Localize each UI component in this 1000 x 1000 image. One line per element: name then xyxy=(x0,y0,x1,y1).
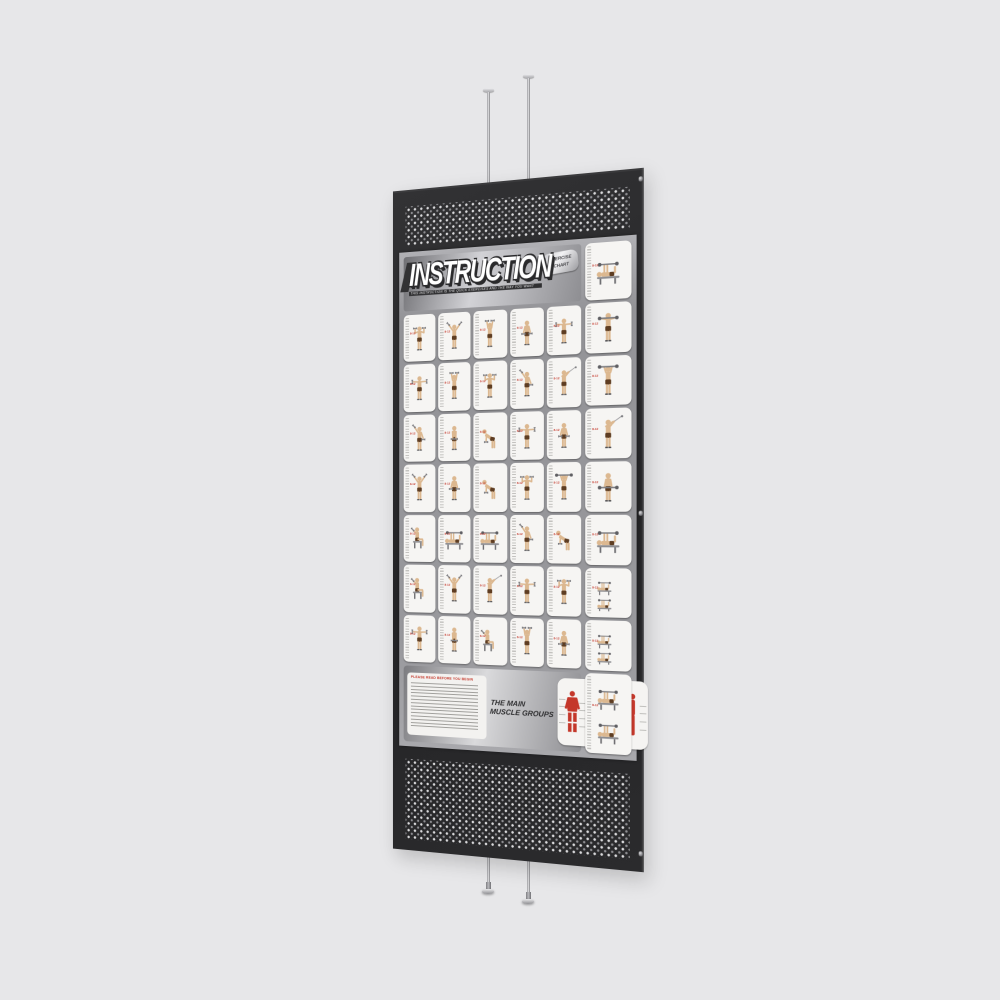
exercise-figure-icon xyxy=(407,572,431,605)
reps-label: 8-12 xyxy=(445,482,451,485)
reps-label: 8-12 xyxy=(553,585,559,588)
exercise-figure-icon xyxy=(407,372,431,405)
title-block: INSTRUCTION THIS INSTRUCTION IS THE QUIC… xyxy=(409,251,540,300)
exercise-cell: 8-12 xyxy=(438,565,471,613)
reps-label: 8-12 xyxy=(553,429,559,432)
exercise-cell: 8-12 xyxy=(547,462,582,511)
rod-shaft xyxy=(487,92,490,190)
instruction-poster: INSTRUCTION THIS INSTRUCTION IS THE QUIC… xyxy=(399,235,636,761)
exercise-figure-icon xyxy=(407,522,431,554)
exercise-cell: 8-12 xyxy=(585,240,631,301)
reps-label: 8-12 xyxy=(410,483,415,486)
exercise-cell: 8-12 xyxy=(404,314,436,363)
exercise-figure-icon xyxy=(442,623,467,656)
exercise-cell: 8-12 xyxy=(438,362,471,411)
exercise-name-label xyxy=(405,368,409,409)
exercise-name-label xyxy=(405,518,409,559)
notice-block: PLEASE READ BEFORE YOU BEGIN xyxy=(407,672,486,739)
exercise-name-label xyxy=(587,571,591,615)
rod-foot xyxy=(482,889,494,894)
notice-fine-print xyxy=(411,682,478,731)
exercise-figure-icon xyxy=(478,573,503,606)
exercise-cell: 8-12 xyxy=(547,357,582,407)
exercise-cell: 8-12 xyxy=(404,364,436,412)
reps-label: 8-12 xyxy=(445,634,451,637)
exercise-figure-icon xyxy=(591,627,625,665)
exercise-figure-icon xyxy=(442,319,467,353)
exercise-name-label xyxy=(440,568,444,610)
product-photo-backdrop: INSTRUCTION THIS INSTRUCTION IS THE QUIC… xyxy=(0,0,1000,1000)
reps-label: 8-12 xyxy=(592,322,598,325)
exercise-cell: 8-12 xyxy=(547,305,582,356)
exercise-cell: 8-12 xyxy=(474,412,507,461)
exercise-name-label xyxy=(440,618,444,660)
reps-label: 8-12 xyxy=(516,636,522,639)
exercise-figure-icon xyxy=(551,574,578,608)
exercise-cell: 8-12 xyxy=(474,463,507,511)
exercise-name-label xyxy=(405,568,409,609)
exercise-cell: 8-12 xyxy=(404,615,436,663)
reps-label: 8-12 xyxy=(516,378,522,381)
exercise-figure-icon xyxy=(591,679,625,749)
poster-header: INSTRUCTION THIS INSTRUCTION IS THE QUIC… xyxy=(404,244,582,312)
reps-label: 8-12 xyxy=(592,704,598,707)
exercise-name-label xyxy=(440,366,444,408)
exercise-figure-icon xyxy=(442,522,467,555)
exercise-figure-icon xyxy=(407,422,431,455)
exercise-cell: 8-12 xyxy=(547,515,582,564)
exercise-name-label xyxy=(476,416,480,458)
instruction-panel: INSTRUCTION THIS INSTRUCTION IS THE QUIC… xyxy=(393,168,644,873)
exercise-figure-icon xyxy=(551,470,578,504)
exercise-figure-icon xyxy=(514,522,540,555)
exercise-figure-icon xyxy=(551,626,578,660)
rod-shaft xyxy=(527,78,530,186)
exercise-figure-icon xyxy=(442,421,467,454)
exercise-name-label xyxy=(405,418,409,459)
exercise-figure-icon xyxy=(551,522,578,556)
exercise-cell: 8-12 xyxy=(474,515,507,563)
exercise-name-label xyxy=(549,466,553,509)
exercise-name-label xyxy=(549,570,553,613)
reps-label: 8-12 xyxy=(592,534,598,537)
exercise-figure-icon xyxy=(407,321,431,354)
exercise-figure-icon xyxy=(591,521,625,558)
muscle-groups-title: THE MAIN MUSCLE GROUPS xyxy=(490,699,555,720)
exercise-figure-icon xyxy=(478,420,503,453)
exercise-cell: 8-12 xyxy=(585,301,631,353)
exercise-cell: 8-12 xyxy=(404,414,436,462)
top-rod-right xyxy=(523,74,534,186)
exercise-name-label xyxy=(587,465,591,509)
exercise-cell: 8-12 xyxy=(510,463,544,512)
exercise-name-label xyxy=(440,467,444,509)
exercise-figure-icon xyxy=(407,622,431,655)
exercise-name-label xyxy=(405,318,409,359)
poster-main-column: INSTRUCTION THIS INSTRUCTION IS THE QUIC… xyxy=(404,244,582,752)
exercise-name-label xyxy=(512,620,516,663)
exercise-name-label xyxy=(512,363,516,406)
exercise-figure-icon xyxy=(478,317,503,351)
exercise-cell: 8-12 xyxy=(510,411,544,460)
exercise-figure-icon xyxy=(514,625,540,659)
screw-bottom-right xyxy=(638,851,643,856)
exercise-figure-icon xyxy=(407,472,431,504)
exercise-name-label xyxy=(476,569,480,611)
exercise-name-label xyxy=(476,365,480,407)
exercise-name-label xyxy=(587,412,591,456)
reps-label: 8-12 xyxy=(410,433,415,436)
exercise-cell: 8-12 xyxy=(585,515,631,565)
exercise-cell: 8-12 xyxy=(547,410,582,460)
reps-label: 8-12 xyxy=(410,533,415,536)
muscle-groups-bar: PLEASE READ BEFORE YOU BEGIN THE MAIN MU… xyxy=(404,665,582,752)
exercise-name-label xyxy=(587,359,591,403)
exercise-cell: 8-12 xyxy=(547,618,582,668)
exercise-grid: 8-128-128-128-128-128-128-128-128-128-12… xyxy=(404,305,582,669)
reps-label: 8-12 xyxy=(445,583,451,586)
reps-label: 8-12 xyxy=(516,533,522,536)
screw-middle-right xyxy=(638,511,643,516)
exercise-figure-icon xyxy=(514,367,540,401)
exercise-figure-icon xyxy=(551,313,578,348)
reps-label: 8-12 xyxy=(410,633,415,636)
screw-top-right xyxy=(638,176,643,181)
exercise-figure-icon xyxy=(478,624,503,658)
exercise-name-label xyxy=(587,246,591,297)
exercise-cell: 8-12 xyxy=(404,565,436,613)
exercise-cell: 8-12 xyxy=(438,312,471,361)
exercise-name-label xyxy=(512,466,516,508)
exercise-cell: 8-12 xyxy=(404,465,436,512)
exercise-cell: 8-12 xyxy=(510,307,544,357)
reps-label: 8-12 xyxy=(592,587,598,590)
exercise-figure-icon xyxy=(442,472,467,505)
rod-nut xyxy=(486,882,491,889)
top-rod-left xyxy=(483,88,494,190)
badge-line-2: CHART xyxy=(553,262,569,269)
exercise-figure-icon xyxy=(514,471,540,504)
exercise-figure-icon xyxy=(591,308,625,347)
reps-label: 8-12 xyxy=(553,377,559,380)
rod-nut xyxy=(526,892,531,899)
exercise-name-label xyxy=(587,676,591,750)
reps-label: 8-12 xyxy=(480,635,486,638)
reps-label: 8-12 xyxy=(553,637,559,640)
exercise-name-label xyxy=(405,468,409,509)
reps-label: 8-12 xyxy=(553,533,559,536)
reps-label: 8-12 xyxy=(516,585,522,588)
muscle-figure-front-icon xyxy=(558,683,588,741)
exercise-figure-icon xyxy=(591,574,625,612)
exercise-figure-icon xyxy=(514,315,540,349)
reps-label: 8-12 xyxy=(480,584,486,587)
reps-label: 8-12 xyxy=(445,533,451,536)
reps-label: 8-12 xyxy=(480,380,486,383)
bottom-vent-grille xyxy=(405,759,629,860)
exercise-cell: 8-12 xyxy=(404,515,436,562)
exercise-cell: 8-12 xyxy=(474,361,507,410)
exercise-name-label xyxy=(512,518,516,560)
exercise-cell: 8-12 xyxy=(510,617,544,667)
exercise-name-label xyxy=(587,518,591,562)
exercise-name-label xyxy=(512,415,516,458)
reps-label: 8-12 xyxy=(480,482,486,485)
exercise-cell: 8-12 xyxy=(438,616,471,665)
exercise-cell: 8-12 xyxy=(585,673,631,755)
exercise-figure-icon xyxy=(591,415,625,453)
exercise-name-label xyxy=(512,569,516,611)
exercise-cell: 8-12 xyxy=(585,461,631,511)
exercise-cell: 8-12 xyxy=(585,620,631,672)
exercise-name-label xyxy=(476,619,480,661)
exercise-cell: 8-12 xyxy=(585,408,631,459)
exercise-figure-icon xyxy=(478,369,503,403)
exercise-name-label xyxy=(587,307,591,351)
reps-label: 8-12 xyxy=(516,482,522,485)
exercise-cell: 8-12 xyxy=(510,566,544,615)
reps-label: 8-12 xyxy=(592,481,598,484)
side-exercise-column: 8-128-128-128-128-128-128-128-128-12 xyxy=(585,240,631,755)
exercise-figure-icon xyxy=(514,574,540,608)
exercise-cell: 8-12 xyxy=(474,616,507,665)
exercise-name-label xyxy=(549,362,553,405)
notice-title: PLEASE READ BEFORE YOU BEGIN xyxy=(411,675,454,680)
reps-label: 8-12 xyxy=(445,432,451,435)
reps-label: 8-12 xyxy=(410,583,415,586)
exercise-name-label xyxy=(440,316,444,358)
exercise-figure-icon xyxy=(591,468,625,505)
exercise-cell: 8-12 xyxy=(510,515,544,564)
exercise-name-label xyxy=(476,467,480,509)
exercise-figure-icon xyxy=(551,365,578,399)
exercise-figure-icon xyxy=(442,573,467,606)
exercise-figure-icon xyxy=(551,418,578,452)
exercise-name-label xyxy=(440,518,444,560)
exercise-figure-icon xyxy=(591,361,625,399)
reps-label: 8-12 xyxy=(480,533,486,536)
exercise-name-label xyxy=(476,518,480,560)
exercise-figure-icon xyxy=(514,419,540,453)
exercise-cell: 8-12 xyxy=(438,464,471,512)
reps-label: 8-12 xyxy=(592,428,598,431)
reps-label: 8-12 xyxy=(410,383,415,386)
exercise-name-label xyxy=(549,622,553,665)
exercise-name-label xyxy=(587,623,591,667)
exercise-cell: 8-12 xyxy=(438,413,471,461)
reps-label: 8-12 xyxy=(592,375,598,378)
exercise-cell: 8-12 xyxy=(585,568,631,619)
exercise-cell: 8-12 xyxy=(474,566,507,615)
exercise-cell: 8-12 xyxy=(510,359,544,409)
rod-foot xyxy=(522,899,534,904)
exercise-cell: 8-12 xyxy=(585,354,631,406)
exercise-figure-icon xyxy=(478,522,503,555)
exercise-figure-icon xyxy=(478,471,503,504)
exercise-name-label xyxy=(512,312,516,355)
exercise-name-label xyxy=(476,314,480,356)
reps-label: 8-12 xyxy=(553,481,559,484)
exercise-figure-icon xyxy=(591,251,625,290)
exercise-name-label xyxy=(549,310,553,353)
exercise-name-label xyxy=(440,417,444,459)
exercise-name-label xyxy=(549,518,553,561)
exercise-name-label xyxy=(549,414,553,457)
exercise-name-label xyxy=(405,618,409,659)
reps-label: 8-12 xyxy=(592,639,598,642)
reps-label: 8-12 xyxy=(445,381,451,384)
reps-label: 8-12 xyxy=(480,431,486,434)
exercise-cell: 8-12 xyxy=(547,567,582,617)
exercise-cell: 8-12 xyxy=(474,309,507,359)
exercise-cell: 8-12 xyxy=(438,515,471,563)
reps-label: 8-12 xyxy=(516,430,522,433)
exercise-figure-icon xyxy=(442,370,467,403)
muscle-title-line-2: MUSCLE GROUPS xyxy=(490,708,554,720)
